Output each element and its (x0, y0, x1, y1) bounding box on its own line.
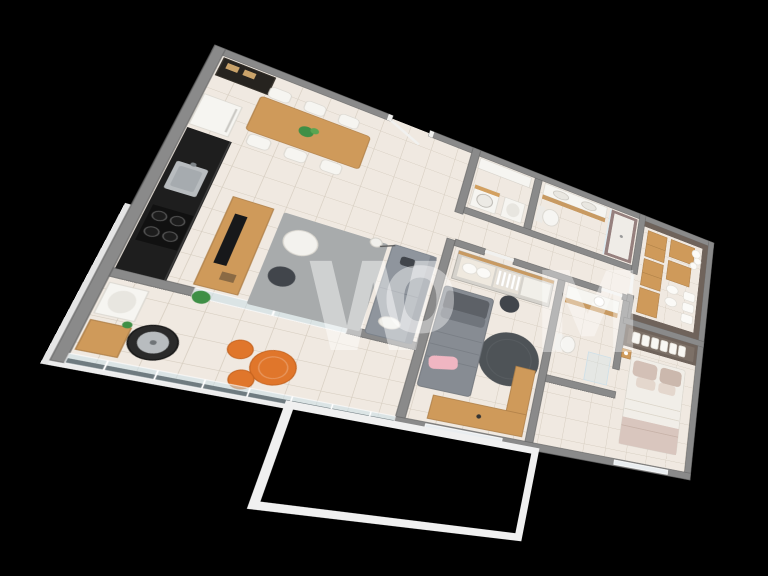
bath2-shower-glass (584, 352, 611, 385)
wall-hall-c (622, 294, 628, 301)
pink-pillow (428, 355, 457, 370)
floorplan-stage: W O M (0, 0, 768, 576)
apartment-floorplan (50, 45, 714, 480)
